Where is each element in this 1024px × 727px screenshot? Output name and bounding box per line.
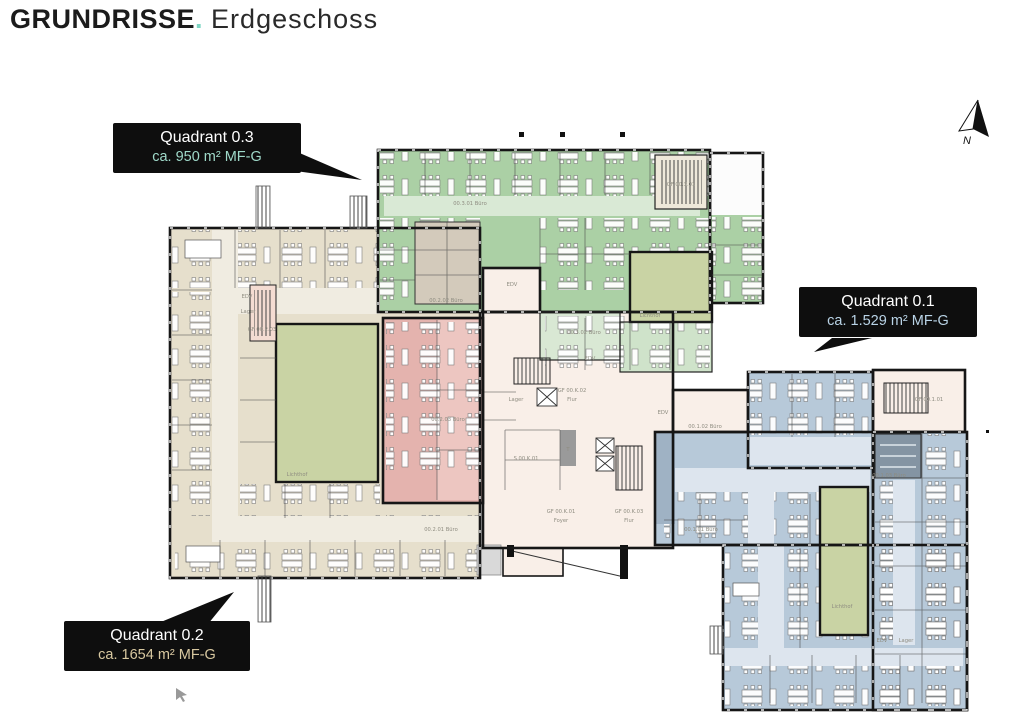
north-label: N [963, 135, 971, 147]
room-label: Lager [899, 638, 915, 644]
pointer-q02 [156, 592, 234, 624]
room-label: GF 00.2.03 [248, 327, 276, 333]
callout-quadrant-01: Quadrant 0.1 ca. 1.529 m² MF-G [799, 287, 977, 337]
room-label: GF 00.K.02 [558, 388, 587, 394]
room-label: Flur [567, 397, 578, 403]
floor-plan-page: { "page": { "title_main": "GRUNDRISSE", … [0, 0, 1024, 727]
room-label: 00.3.01 Büro [453, 201, 487, 207]
room-label: EDV [585, 356, 596, 362]
room-label: 00.2.02 Büro [429, 298, 463, 304]
room-label: GF 00.K.01 [547, 509, 576, 515]
north-arrow: N [959, 100, 989, 147]
room-label: EDV [658, 410, 669, 416]
exterior-stair-4 [710, 626, 723, 654]
callout-quadrant-02: Quadrant 0.2 ca. 1654 m² MF-G [64, 621, 250, 671]
room-label: Foyer [554, 518, 569, 524]
callout-quadrant-03: Quadrant 0.3 ca. 950 m² MF-G [113, 123, 301, 173]
room-label: Lichthof [287, 472, 308, 478]
callout-q03-title: Quadrant 0.3 [121, 128, 293, 148]
core-north [483, 268, 540, 312]
stairs-core-2 [616, 446, 642, 490]
callout-q03-area: ca. 950 m² MF-G [121, 148, 293, 166]
callout-q01-title: Quadrant 0.1 [807, 292, 969, 312]
room-label: EDV [242, 294, 253, 300]
room-label: GF 00.K.03 [615, 509, 644, 515]
room-label: 00.2.01 Büro [424, 527, 458, 533]
callout-q01-area: ca. 1.529 m² MF-G [807, 312, 969, 330]
room-label: 00.2.03 Büro [431, 417, 465, 423]
wc-block-north [415, 222, 480, 304]
exterior-stair-2 [350, 196, 367, 228]
exterior-stair-3 [258, 576, 271, 622]
room-label: EDV [507, 282, 518, 288]
room-label: 00.3.02 Büro [567, 330, 601, 336]
room-label: 00.1.03 Büro [872, 473, 906, 479]
room-label: Lager [509, 397, 525, 403]
room-label: 00.1.01 Büro [684, 527, 718, 533]
cursor-mark [176, 688, 187, 702]
callout-q02-area: ca. 1654 m² MF-G [72, 646, 242, 664]
room-label: Flur [624, 518, 635, 524]
lichthof-east [820, 487, 868, 635]
pointer-q01 [814, 338, 872, 352]
room-label: GF 00.1.01 [915, 397, 943, 403]
room-label: EDV [877, 638, 888, 644]
stairs-core-1 [514, 358, 550, 384]
room-label: Lichthof [640, 313, 661, 319]
room-label: GF 00.3.01 [667, 182, 695, 188]
room-label: Lager [241, 309, 257, 315]
room-label: Lichthof [832, 604, 853, 610]
floor-plan-drawing: N 00.3.01 BüroGF 00.3.01EDV00.3.02 BüroL… [0, 0, 1024, 727]
lichthof-west [276, 324, 378, 482]
room-white-ne [710, 153, 763, 215]
room-label: 00.1.02 Büro [688, 424, 722, 430]
callout-q02-title: Quadrant 0.2 [72, 626, 242, 646]
exterior-stair-1 [256, 186, 270, 228]
room-label: S 00.K.01 [514, 456, 539, 462]
